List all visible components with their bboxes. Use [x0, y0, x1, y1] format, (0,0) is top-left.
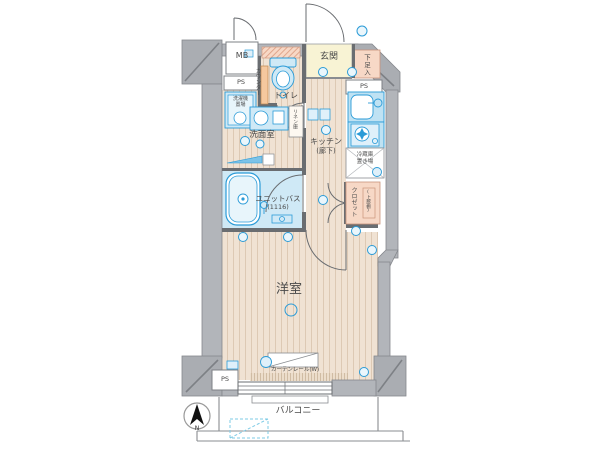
- kitchen-corridor-floor: [306, 78, 346, 232]
- refrigerator-space: [346, 148, 384, 178]
- floor-plan: N MB PS PS PS 玄関 下足入 トイレ カウンター 洗面室 洗濯機 置…: [0, 0, 600, 450]
- drain-box: [263, 154, 274, 165]
- kitchen-sink: [348, 92, 384, 122]
- electrical-symbol-icon: [261, 357, 272, 368]
- meter-box-door-arc: [234, 18, 256, 40]
- stove: [348, 122, 384, 148]
- evacuation-hatch: [230, 419, 268, 438]
- toilet-upper-shelf: [262, 47, 300, 58]
- electrical-symbol-icon: [319, 68, 328, 77]
- linen-cabinet: [289, 106, 303, 137]
- electrical-symbol-icon: [373, 168, 382, 177]
- control-panel-icon: [320, 109, 330, 120]
- electrical-symbol-icon: [256, 140, 264, 148]
- meter-symbol-icon: [227, 361, 238, 369]
- toilet-counter: [261, 66, 268, 104]
- meter-box: [226, 42, 258, 74]
- entrance-floor: [306, 44, 352, 78]
- ceiling-light-icon: [239, 233, 248, 242]
- vanity-sink: [250, 107, 288, 130]
- electrical-symbol-icon: [245, 50, 253, 57]
- washing-machine-drum: [234, 112, 246, 124]
- window-sill: [252, 396, 328, 403]
- electrical-symbol-icon: [319, 196, 328, 205]
- sink-basin: [351, 95, 373, 119]
- vanity-bowl: [254, 111, 268, 125]
- electrical-symbol-icon: [360, 368, 369, 377]
- electrical-symbol-icon: [322, 126, 331, 135]
- electrical-symbol-icon: [241, 137, 250, 146]
- pipe-space-top-left-box: [224, 76, 258, 90]
- compass-north-label: N: [195, 425, 200, 432]
- electrical-symbol-icon: [348, 68, 357, 77]
- entrance-door-arc: [306, 4, 344, 42]
- shoe-box: [354, 50, 380, 78]
- intercom-icon: [357, 26, 367, 36]
- floor-plan-drawing: N: [0, 0, 600, 450]
- control-panel-icon: [308, 109, 318, 120]
- compass: N: [184, 403, 210, 432]
- closet-box: [346, 182, 380, 224]
- electrical-symbol-icon: [352, 227, 361, 236]
- ceiling-light-icon: [284, 233, 293, 242]
- balcony-outline: [197, 397, 410, 441]
- pipe-space-bottom-box: [212, 370, 238, 390]
- electrical-symbol-icon: [368, 246, 377, 255]
